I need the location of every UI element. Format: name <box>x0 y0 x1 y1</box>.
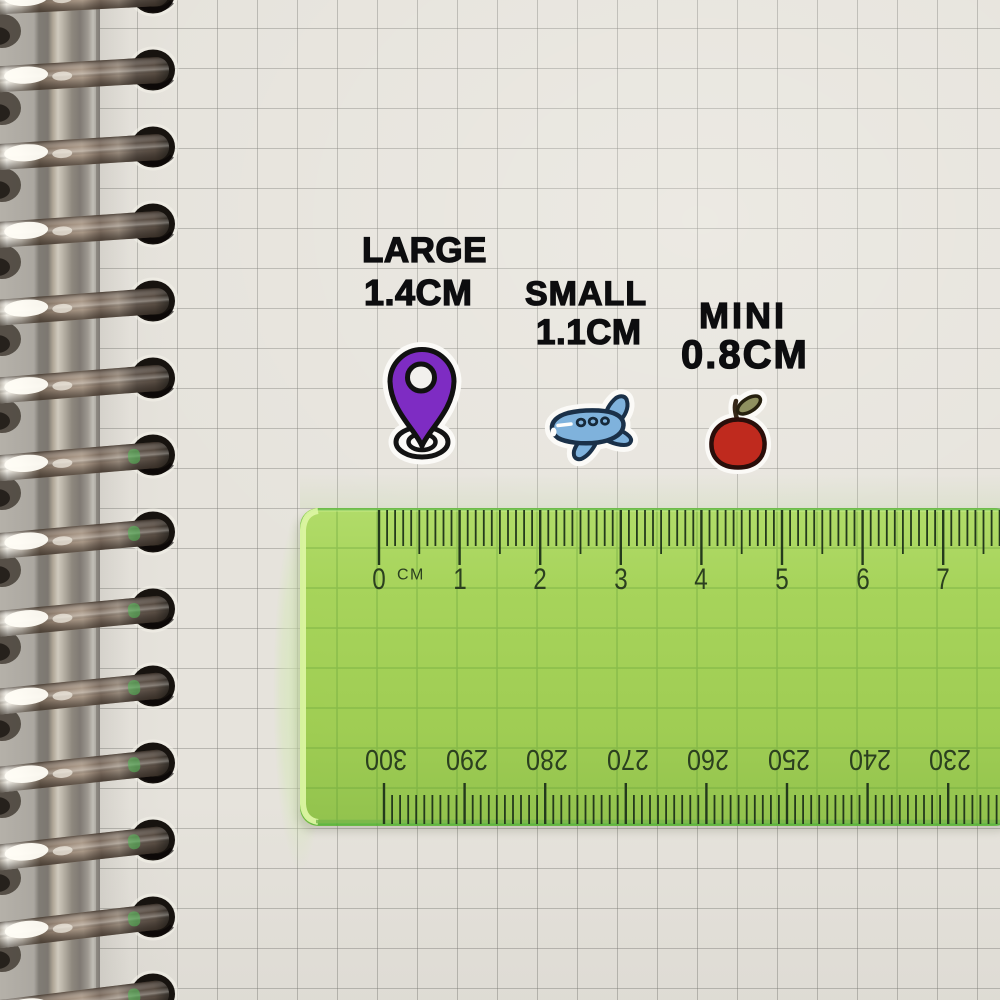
svg-text:3: 3 <box>614 563 628 596</box>
svg-text:280: 280 <box>526 743 568 775</box>
svg-text:CM: CM <box>397 567 425 584</box>
svg-text:6: 6 <box>856 563 870 596</box>
svg-text:230: 230 <box>929 743 971 775</box>
svg-text:300: 300 <box>365 743 407 775</box>
svg-text:2: 2 <box>533 563 547 596</box>
svg-text:290: 290 <box>446 743 488 775</box>
svg-text:5: 5 <box>775 563 789 596</box>
svg-text:260: 260 <box>687 743 729 775</box>
svg-text:4: 4 <box>694 563 708 596</box>
svg-text:250: 250 <box>768 743 810 775</box>
svg-text:0: 0 <box>372 563 386 596</box>
svg-text:270: 270 <box>607 743 649 775</box>
svg-text:1: 1 <box>453 563 467 596</box>
svg-text:240: 240 <box>849 743 891 775</box>
svg-text:7: 7 <box>936 563 950 596</box>
